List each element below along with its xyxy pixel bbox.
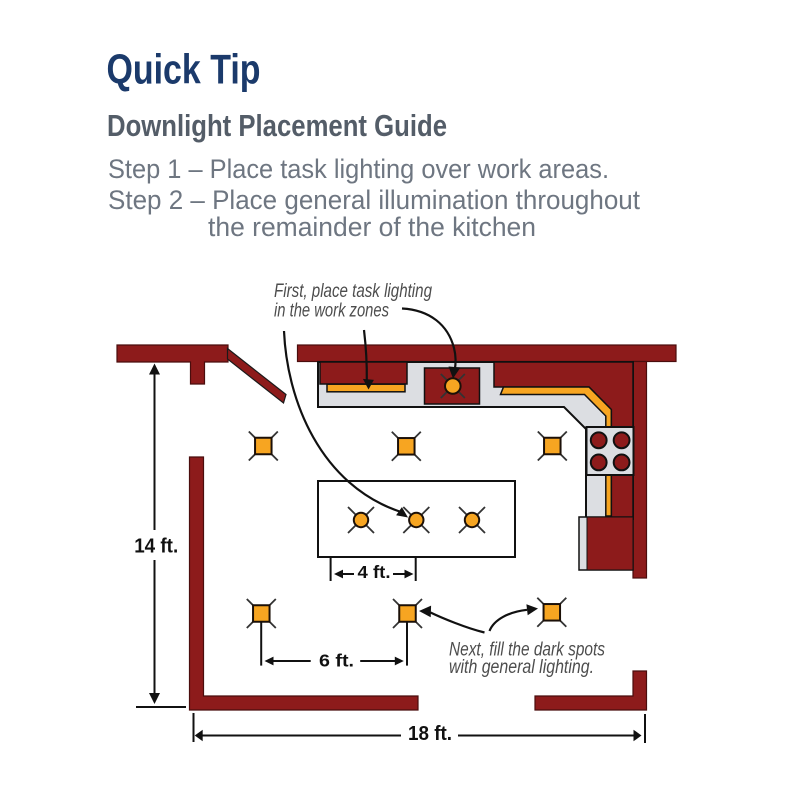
svg-text:4 ft.: 4 ft. <box>358 562 391 582</box>
svg-text:Step 1 – Place task lighting o: Step 1 – Place task lighting over work a… <box>108 154 609 184</box>
svg-text:Downlight Placement Guide: Downlight Placement Guide <box>107 109 447 143</box>
svg-text:Quick Tip: Quick Tip <box>107 46 261 93</box>
svg-text:with general lighting.: with general lighting. <box>449 656 594 678</box>
svg-text:18 ft.: 18 ft. <box>408 723 452 745</box>
svg-text:14 ft.: 14 ft. <box>134 536 178 558</box>
svg-text:the remainder of the kitchen: the remainder of the kitchen <box>208 212 536 242</box>
svg-text:in the work zones: in the work zones <box>274 300 389 322</box>
svg-text:Step 2 – Place general illumin: Step 2 – Place general illumination thro… <box>108 185 640 215</box>
svg-text:6 ft.: 6 ft. <box>319 651 354 671</box>
